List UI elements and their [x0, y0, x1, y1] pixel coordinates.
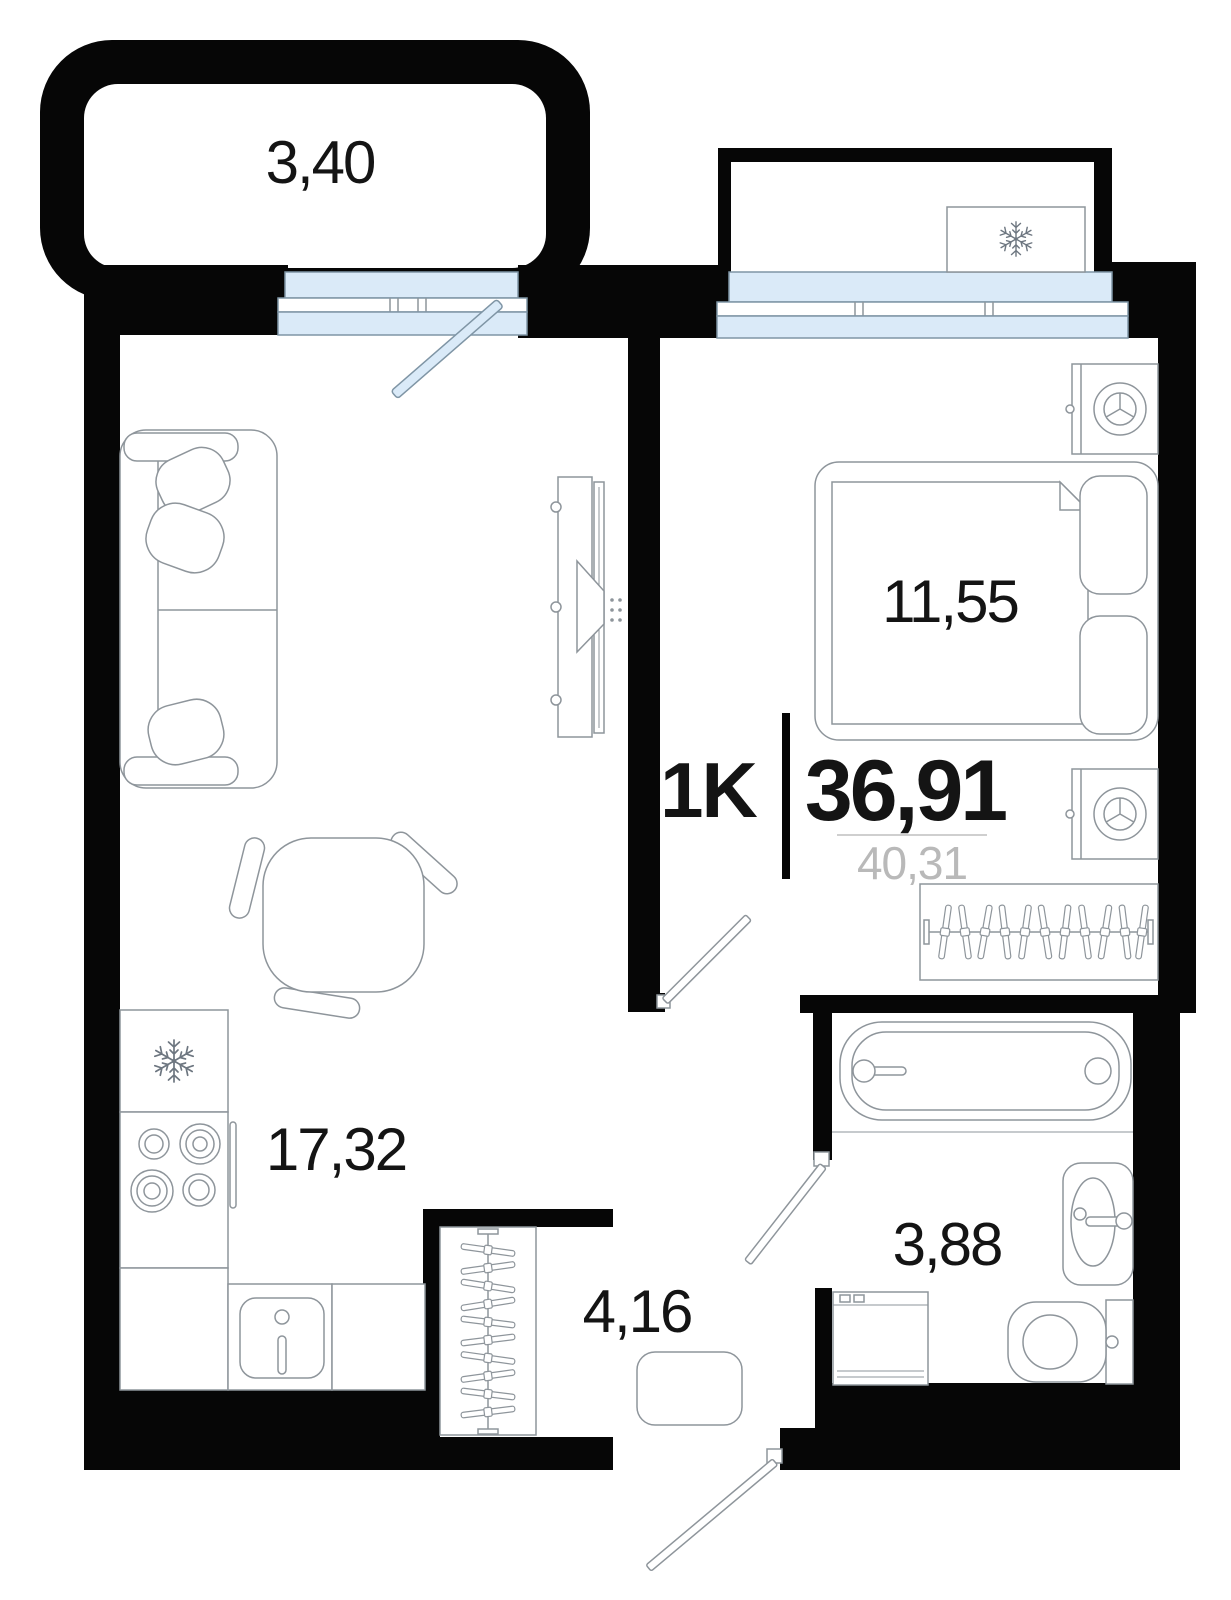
- bottom-wall-left: [84, 1390, 425, 1470]
- secondary-area-label: 40,31: [857, 837, 967, 889]
- bedroom-window: [717, 272, 1128, 338]
- oven-handle: [230, 1122, 236, 1208]
- bottom-wall-right: [780, 1428, 1180, 1470]
- floor-plan-drawing: 3,40 11,55 17,32 4,16 3,88 1K 36,91 40,3…: [0, 0, 1231, 1600]
- top-right-corner-wall-lower: [1128, 300, 1196, 338]
- bedroom: [657, 364, 1158, 1008]
- left-wall: [84, 265, 120, 1470]
- top-right-corner-wall: [1112, 262, 1196, 303]
- bathroom-right-wall: [1133, 1013, 1180, 1470]
- tub-faucet-knob: [853, 1060, 875, 1082]
- closet-top-wall: [423, 1209, 613, 1227]
- nightstand: [1066, 364, 1158, 454]
- rail-end: [1148, 920, 1153, 944]
- living-kitchen-area-label: 17,32: [266, 1116, 406, 1183]
- rail-end: [924, 920, 929, 944]
- bedroom-right-wall: [1158, 338, 1196, 1013]
- pillow: [1080, 616, 1147, 734]
- console-knob: [551, 502, 561, 512]
- window-frame: [717, 302, 1128, 316]
- door-leaf: [745, 1164, 826, 1265]
- sofa: [120, 430, 277, 788]
- loggia-top-wall: [718, 148, 1112, 162]
- living-room: [120, 430, 622, 1390]
- closet-bottom-wall: [423, 1437, 613, 1470]
- bracket-screws: [610, 598, 622, 622]
- bathtub: [832, 1022, 1133, 1132]
- bedroom-area-label: 11,55: [882, 568, 1018, 635]
- entrance-door: [646, 1449, 782, 1571]
- plan-type-label: 1K: [660, 746, 757, 834]
- rail-end: [478, 1429, 498, 1434]
- tv-unit: [551, 477, 622, 737]
- bathroom-top-wall: [800, 995, 1196, 1013]
- flush-button: [1106, 1336, 1118, 1348]
- doormat: [637, 1352, 742, 1425]
- dining-set: [227, 828, 461, 1019]
- faucet: [275, 1310, 289, 1324]
- kitchen-cabinet: [332, 1284, 425, 1390]
- pillow: [1080, 476, 1147, 594]
- summary-divider: [782, 713, 790, 879]
- living-room-window: [278, 272, 527, 399]
- hallway-area-label: 4,16: [583, 1278, 692, 1345]
- door-hinge: [814, 1152, 829, 1166]
- bathroom: [745, 1022, 1133, 1385]
- door-leaf: [646, 1459, 778, 1571]
- partition-wall: [628, 335, 660, 993]
- bedroom-door: [657, 915, 751, 1008]
- rail-end: [478, 1229, 498, 1234]
- total-area-label: 36,91: [805, 743, 1006, 839]
- washing-machine: [833, 1292, 928, 1385]
- nightstand: [1066, 769, 1158, 859]
- bathroom-sink: [1063, 1163, 1133, 1285]
- sink-faucet-knob: [1116, 1213, 1132, 1229]
- top-wall-mid: [518, 265, 729, 303]
- balcony-area-label: 3,40: [266, 129, 375, 196]
- bedroom-wardrobe: [920, 884, 1158, 980]
- bathroom-left-wall-lower: [815, 1288, 832, 1428]
- bathroom-bottom-wall: [832, 1383, 1133, 1428]
- top-wall-mid-lower: [518, 300, 717, 338]
- loggia: [947, 207, 1085, 272]
- bathroom-area-label: 3,88: [893, 1211, 1002, 1278]
- chair: [227, 836, 266, 920]
- floor-plan: 3,40 11,55 17,32 4,16 3,88 1K 36,91 40,3…: [0, 0, 1231, 1600]
- kitchen-cabinet: [120, 1268, 228, 1390]
- window-sill: [729, 272, 1112, 302]
- door-leaf: [662, 915, 751, 1004]
- console-knob: [551, 602, 561, 612]
- loggia-left-wall: [718, 148, 731, 274]
- console-knob: [551, 695, 561, 705]
- hallway-closet: [440, 1227, 536, 1435]
- window-sill: [285, 272, 518, 298]
- toilet: [1008, 1300, 1133, 1384]
- loggia-right-wall: [1094, 148, 1112, 274]
- dining-table: [263, 838, 424, 992]
- bathroom-left-wall-upper: [813, 1013, 832, 1160]
- kitchen: [120, 1010, 425, 1390]
- window-sill-inner: [717, 316, 1128, 338]
- faucet-handle: [278, 1336, 286, 1374]
- bathroom-door: [745, 1152, 829, 1265]
